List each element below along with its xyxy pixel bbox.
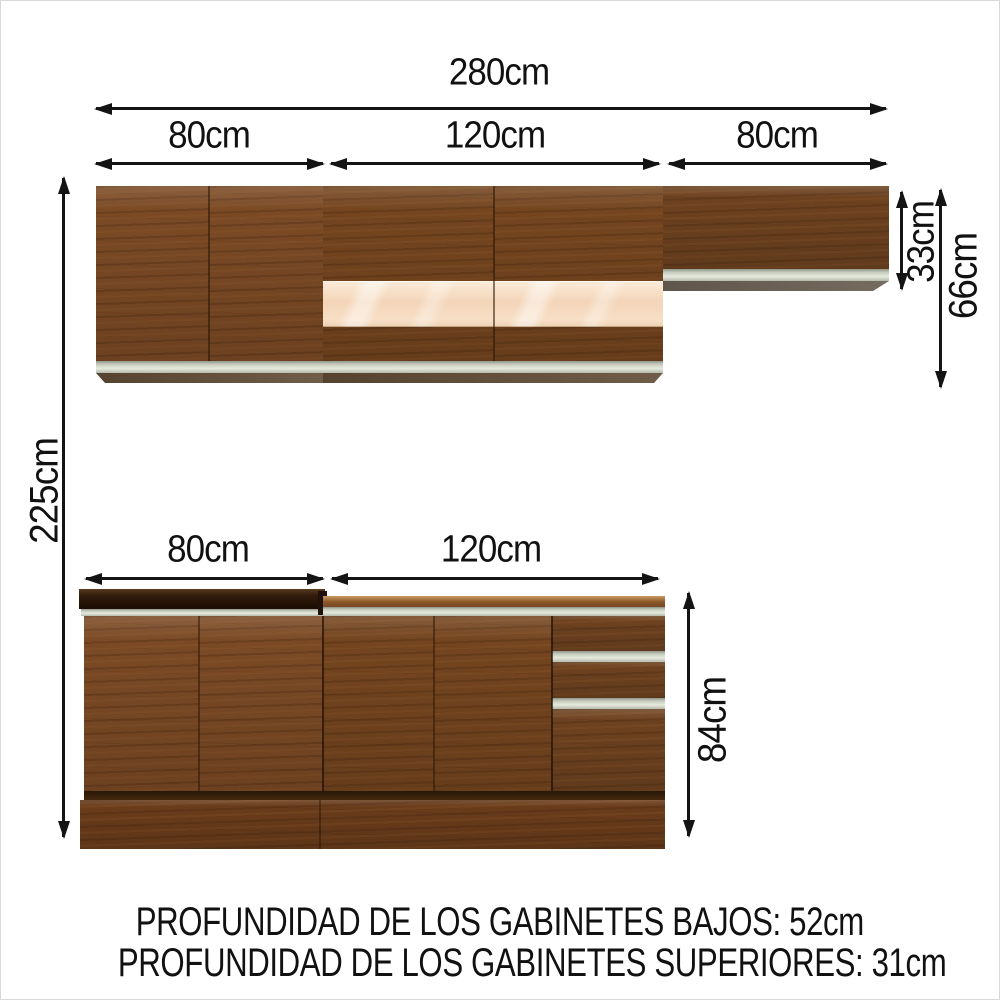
door-gap: [433, 616, 435, 791]
cabinet-door: [494, 186, 663, 361]
dim-label-upper-right-height: 33cm: [901, 201, 944, 283]
depth-note-upper-text: PROFUNDIDAD DE LOS GABINETES SUPERIORES:…: [118, 942, 946, 984]
plinth-seam: [319, 800, 321, 849]
dim-arrow-upper-right-width: [669, 162, 886, 165]
glass-door-panel: [494, 281, 663, 327]
door-gap: [208, 186, 210, 361]
dim-arrow-lower-left-width: [86, 577, 323, 580]
dim-label-upper-left-width: 80cm: [168, 115, 250, 158]
countertop-dark: [79, 589, 325, 609]
aluminum-handle-strip: [663, 269, 889, 281]
aluminum-handle-strip: [96, 361, 323, 373]
base-cabinet-door: [84, 616, 199, 791]
base-cabinet-door: [323, 616, 434, 791]
base-cabinet-door: [199, 616, 323, 791]
dim-arrow-upper-left-width: [96, 162, 323, 165]
dim-label-lower-left-width: 80cm: [167, 529, 249, 572]
dim-label-upper-right-width: 80cm: [736, 115, 818, 158]
aluminum-handle-strip: [552, 651, 665, 662]
cabinet-underside: [323, 373, 663, 383]
drawer-front: [552, 616, 665, 651]
cabinet-underside: [96, 373, 323, 383]
upper-cabinet-middle: [323, 186, 663, 383]
drawer-stack: [552, 616, 665, 791]
upper-cabinet-left: [96, 186, 323, 383]
countertop-trim: [323, 607, 665, 616]
dim-label-upper-height: 66cm: [942, 233, 987, 319]
dim-label-total-height: 225cm: [23, 438, 68, 544]
dim-arrow-lower-middle-width: [332, 577, 658, 580]
dim-label-lower-middle-width: 120cm: [441, 529, 541, 572]
glass-door-panel: [323, 281, 494, 327]
base-cabinet-door: [434, 616, 552, 791]
plinth: [80, 800, 665, 849]
section-gap: [322, 616, 324, 791]
kitchen-dimensions-diagram: 280cm 80cm 120cm 80cm: [0, 0, 1000, 1000]
cabinet-door: [323, 186, 494, 361]
dim-label-total-width: 280cm: [449, 52, 549, 95]
dim-label-upper-middle-width: 120cm: [445, 115, 545, 158]
cabinet-door: [209, 186, 323, 361]
door-gap: [198, 616, 200, 791]
dim-label-lower-height: 84cm: [691, 677, 736, 763]
aluminum-handle-strip: [552, 698, 665, 709]
depth-note-lower-text: PROFUNDIDAD DE LOS GABINETES BAJOS: 52cm: [136, 901, 864, 943]
cabinet-door: [552, 709, 665, 791]
cabinet-door: [663, 186, 889, 269]
door-gap: [493, 186, 495, 361]
door-gap: [551, 616, 553, 791]
countertop-wood: [323, 596, 665, 607]
depth-note-upper: PROFUNDIDAD DE LOS GABINETES SUPERIORES:…: [1, 942, 999, 984]
dim-arrow-upper-middle-width: [331, 162, 659, 165]
dim-arrow-total-width: [96, 107, 886, 110]
upper-cabinet-right: [663, 186, 889, 291]
cabinet-door: [96, 186, 209, 361]
door-bottom-shadow: [84, 791, 665, 800]
aluminum-handle-strip: [323, 361, 663, 373]
depth-note-lower: PROFUNDIDAD DE LOS GABINETES BAJOS: 52cm: [1, 901, 999, 943]
cabinet-underside: [663, 281, 889, 291]
countertop-trim: [81, 609, 323, 616]
drawer-front: [552, 662, 665, 698]
